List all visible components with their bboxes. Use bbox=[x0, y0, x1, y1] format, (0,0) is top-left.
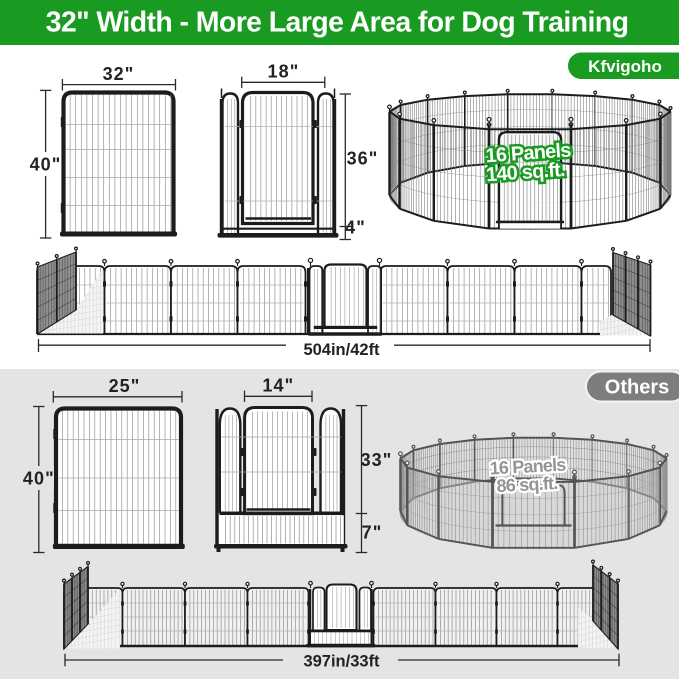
svg-text:14": 14" bbox=[262, 376, 294, 396]
svg-text:7": 7" bbox=[362, 523, 383, 543]
svg-text:32" Width - More Large Area fo: 32" Width - More Large Area for Dog Trai… bbox=[46, 6, 629, 38]
svg-text:18": 18" bbox=[267, 62, 299, 82]
svg-text:86 sq.ft.: 86 sq.ft. bbox=[496, 473, 558, 496]
svg-text:397in/33ft: 397in/33ft bbox=[303, 652, 380, 670]
svg-text:32": 32" bbox=[103, 64, 135, 84]
svg-text:40": 40" bbox=[23, 469, 55, 489]
svg-text:4": 4" bbox=[345, 218, 366, 238]
svg-text:25": 25" bbox=[109, 376, 141, 396]
svg-text:40": 40" bbox=[30, 155, 62, 175]
svg-text:Kfvigoho: Kfvigoho bbox=[588, 57, 662, 76]
svg-text:33": 33" bbox=[361, 450, 393, 470]
svg-text:504in/42ft: 504in/42ft bbox=[303, 341, 380, 359]
svg-text:Others: Others bbox=[605, 377, 669, 399]
svg-text:36": 36" bbox=[347, 149, 379, 169]
